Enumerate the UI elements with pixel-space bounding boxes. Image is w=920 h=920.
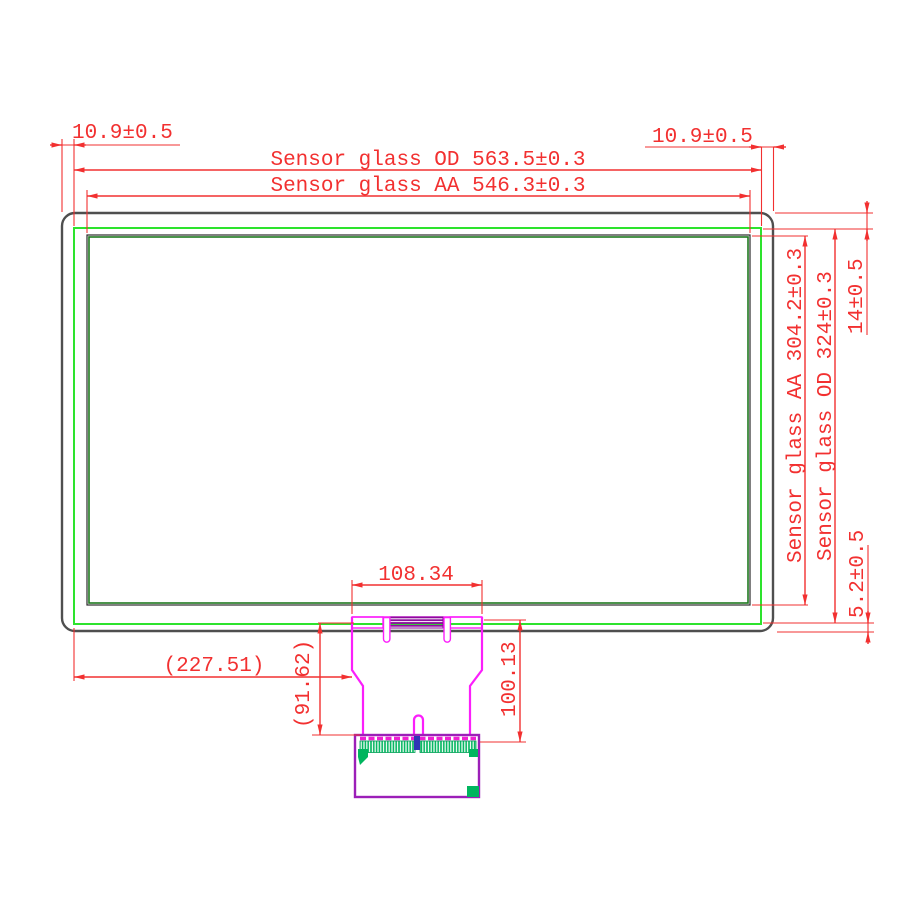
bonding-pad-center [390,617,443,628]
pcb-component-bottom-right [467,786,479,797]
bonding-pad-right [450,617,482,628]
dim-label-right-margin: 10.9±0.5 [652,126,753,149]
connector-center-key [414,736,420,750]
tail-right-edge [470,617,482,734]
dim-label-bottom-margin: 5.2±0.5 [847,530,870,618]
dim-label-aa-width: Sensor glass AA 546.3±0.3 [270,175,585,198]
bonding-pad-left [352,617,383,628]
connector-left [360,741,415,753]
sensor-glass-aa-inner-outline [89,237,748,603]
tail-left-edge [352,617,363,734]
tail-center-tab [414,716,423,736]
pcb-component-arrow [358,757,368,765]
dim-label-aa-height: Sensor glass AA 304.2±0.3 [785,248,808,563]
tail-slot-right [444,618,450,643]
dim-label-od-width: Sensor glass OD 563.5±0.3 [270,149,585,172]
dim-label-top-margin: 14±0.5 [846,258,869,334]
pcb-board [355,735,479,797]
drawing-canvas: 10.9±0.5 10.9±0.5 Sensor glass OD 563.5±… [0,0,920,920]
mechanical-drawing: 10.9±0.5 10.9±0.5 Sensor glass OD 563.5±… [0,0,920,920]
dim-label-od-height: Sensor glass OD 324±0.3 [815,271,838,561]
pcb-component-top-right [469,749,478,757]
dim-label-left-margin: 10.9±0.5 [72,122,173,145]
pcb-component-top-left [358,749,368,757]
sensor-glass-aa-outline [87,235,750,605]
dim-label-tail-length: 100.13 [499,641,522,717]
dim-label-tail-drop: (91.62) [293,640,316,728]
dim-label-tail-width: 108.34 [378,564,454,587]
fpc-tail [352,617,482,735]
dim-label-tail-offset: (227.51) [164,655,265,678]
tail-slot-left [384,618,390,643]
connector-right [420,741,476,753]
